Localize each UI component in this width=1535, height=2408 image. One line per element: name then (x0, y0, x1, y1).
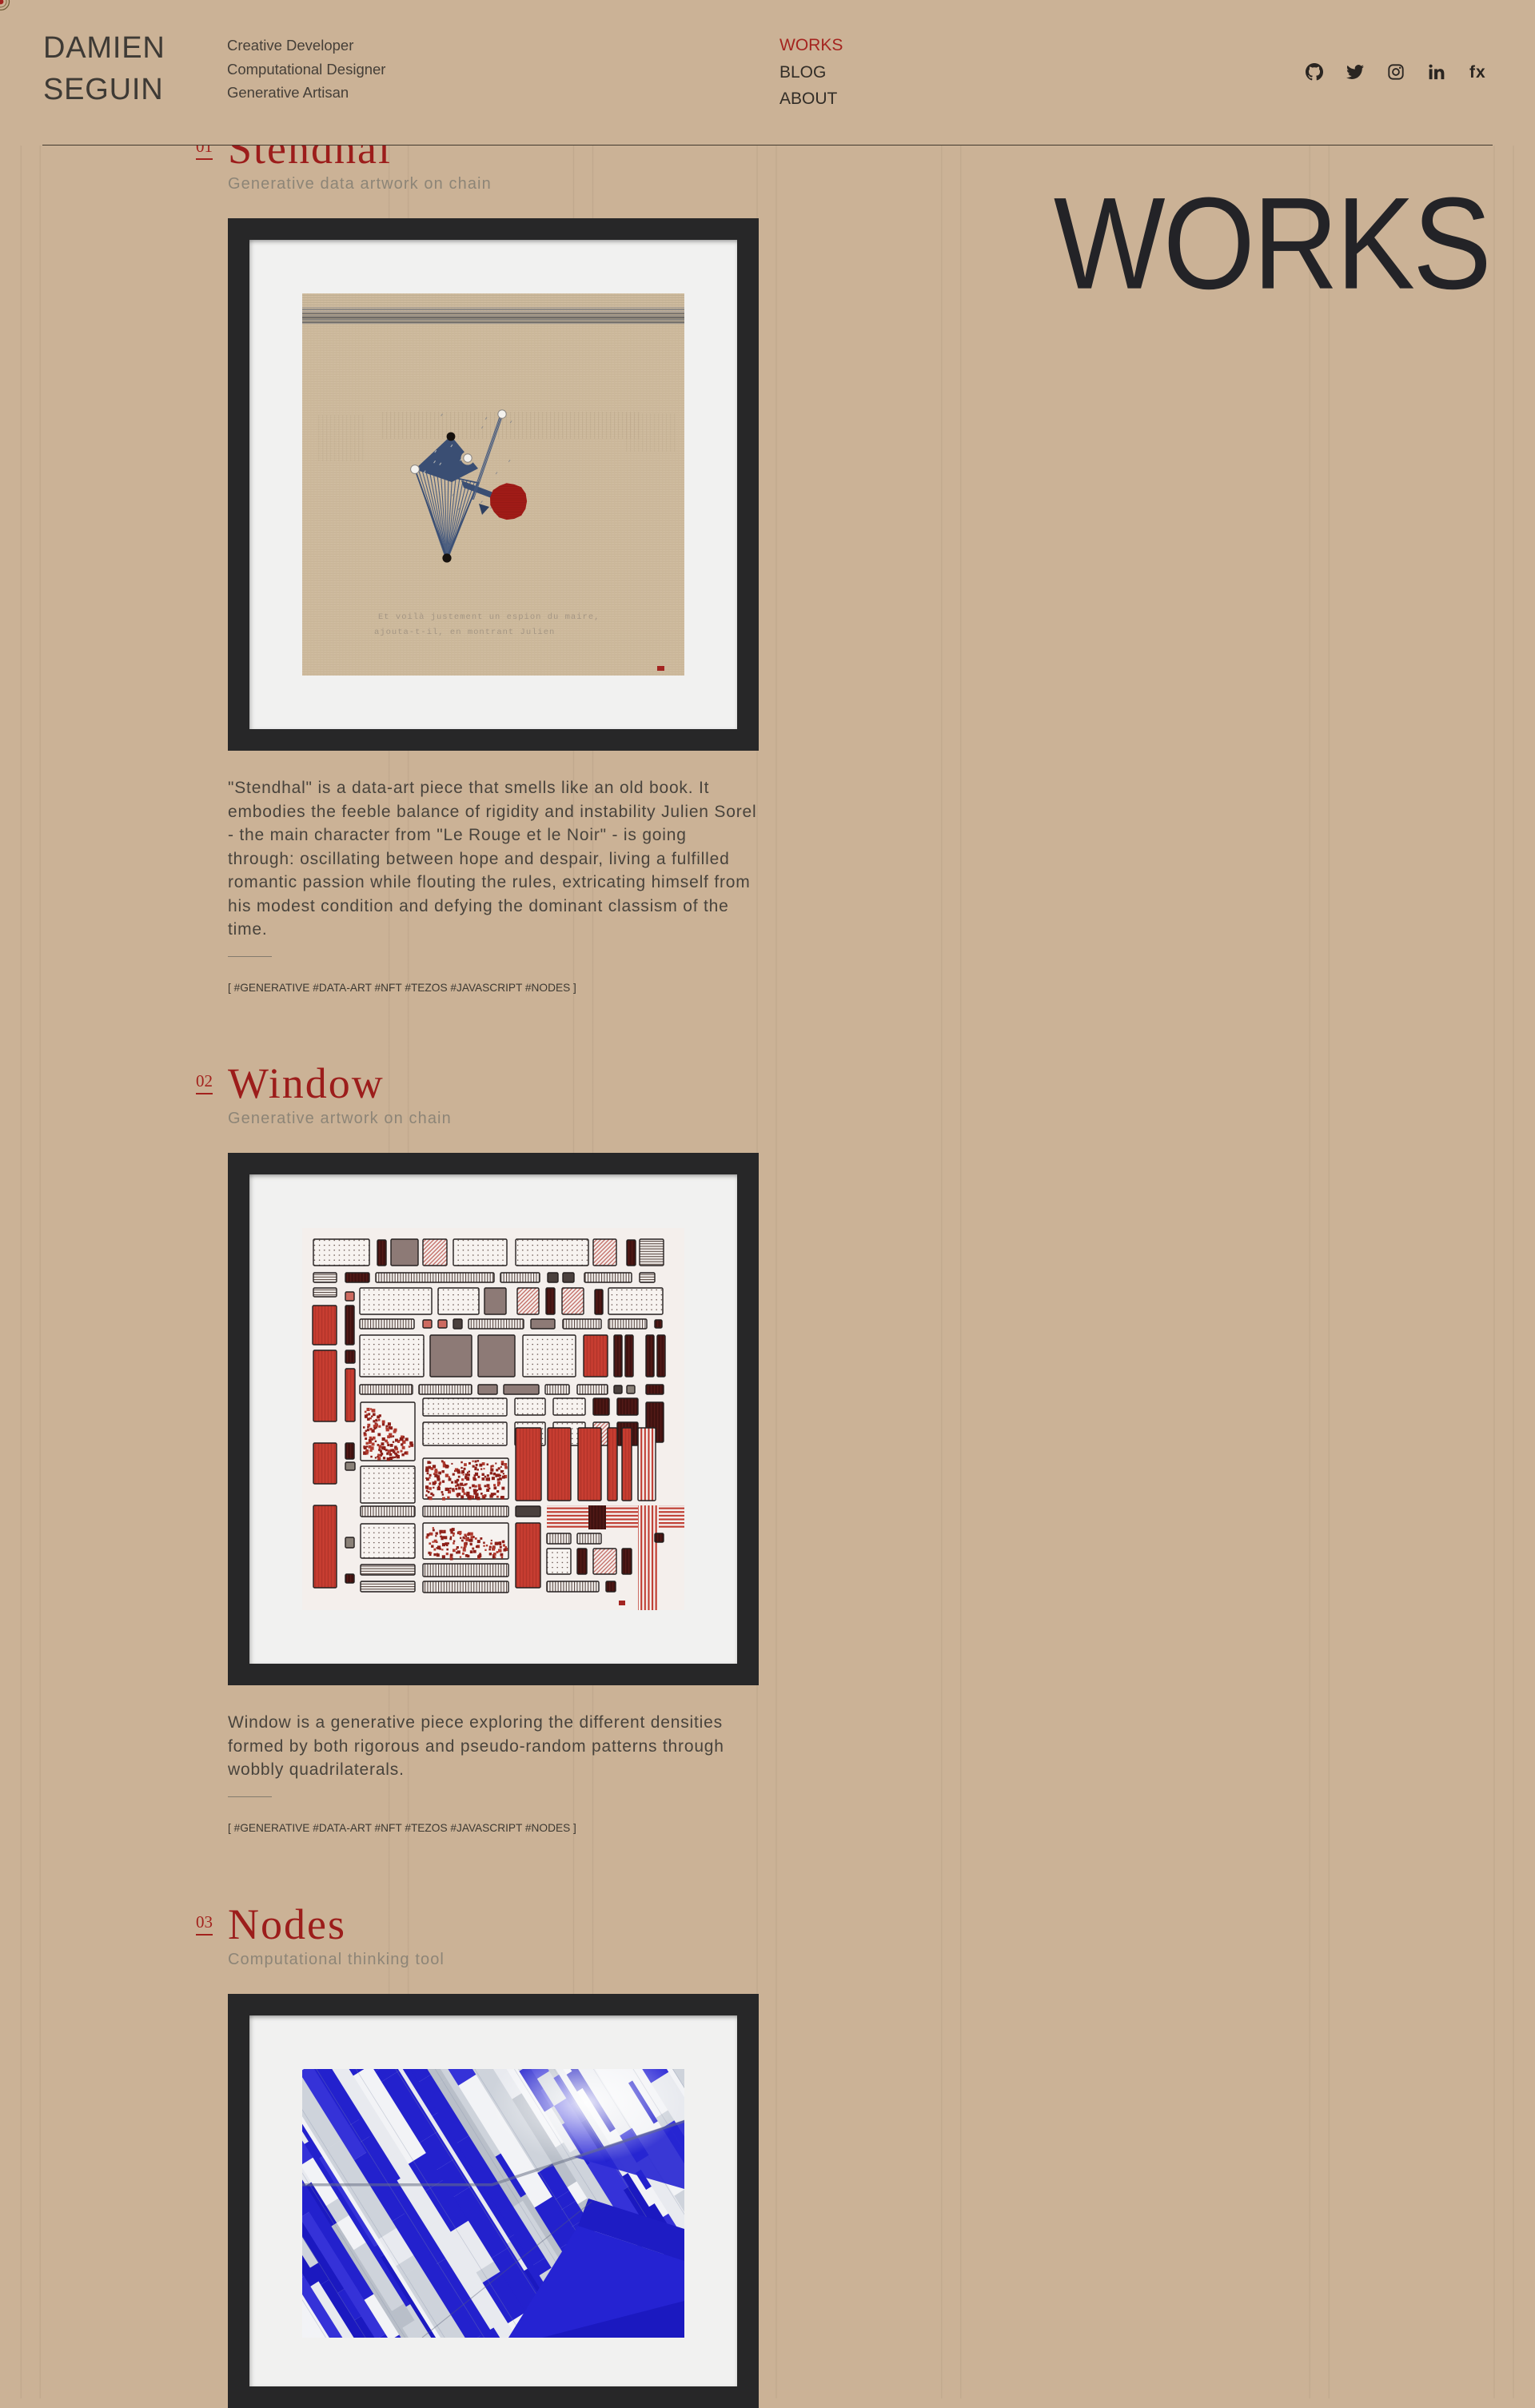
svg-text:ajouta-t-il, en montrant Julie: ajouta-t-il, en montrant Julien (374, 628, 555, 637)
svg-text:Et voilà justement un espion d: Et voilà justement un espion du maire, (378, 612, 600, 622)
